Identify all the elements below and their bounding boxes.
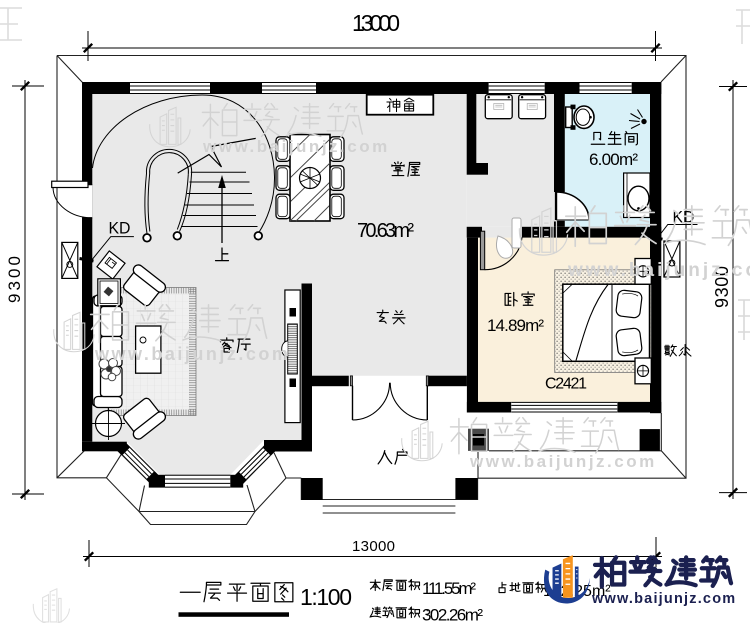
svg-text:70.63m²: 70.63m² (357, 220, 414, 242)
svg-text:www.baijunjz.com: www.baijunjz.com (591, 591, 736, 607)
svg-text:6.00m²: 6.00m² (589, 150, 638, 169)
svg-text:www.baijunjz.com: www.baijunjz.com (567, 260, 750, 281)
svg-text:302.26m²: 302.26m² (422, 606, 483, 623)
svg-text:1:100: 1:100 (300, 584, 352, 610)
svg-text:111.55m²: 111.55m² (422, 579, 476, 598)
svg-text:14.89m²: 14.89m² (487, 316, 544, 335)
svg-text:13000: 13000 (352, 10, 400, 36)
svg-text:KD: KD (109, 219, 131, 238)
svg-text:www.baijunjz.com: www.baijunjz.com (94, 344, 290, 364)
svg-text:C2421: C2421 (545, 376, 587, 393)
svg-text:www.baijunjz.com: www.baijunjz.com (202, 137, 390, 156)
svg-text:www.baijunjz.com: www.baijunjz.com (469, 452, 657, 471)
svg-text:13000: 13000 (352, 538, 395, 555)
